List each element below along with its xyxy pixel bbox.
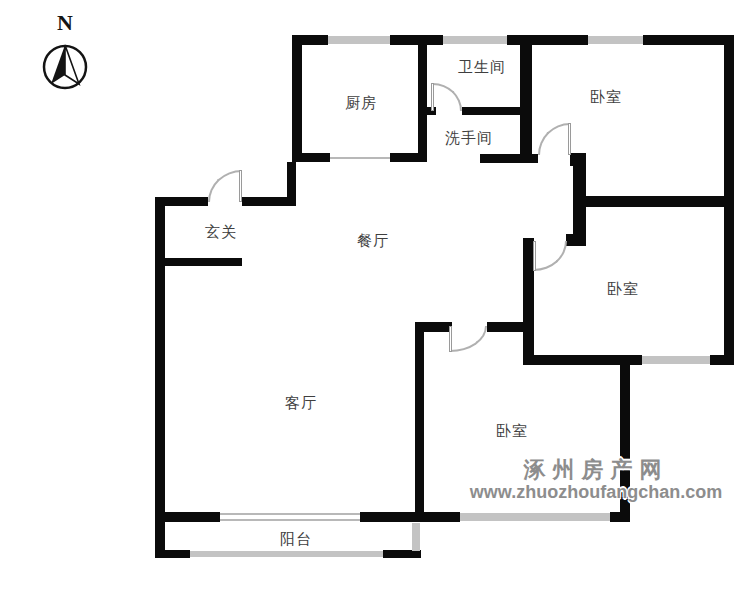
wall-kitchen-south <box>292 153 330 162</box>
window-bedroom-bottom-south <box>460 513 610 521</box>
floor-plan: N <box>0 0 746 600</box>
wall-entrance-north <box>155 197 208 206</box>
compass: N <box>35 10 95 102</box>
watermark-site-url: www.zhuozhoufangchan.com <box>440 482 746 502</box>
door-arc-bedroom-bottom <box>450 326 487 352</box>
room-label-bathroom: 卫生间 <box>442 59 522 75</box>
sliding-door-kitchen <box>330 154 390 161</box>
watermark: 涿州房产网 www.zhuozhoufangchan.com <box>440 458 746 502</box>
wall-bedroom-bottom-north <box>487 322 523 332</box>
door-leaf-bedroom-top <box>568 123 571 155</box>
room-label-washroom: 洗手间 <box>429 130 509 146</box>
door-arc-bedroom-top <box>538 123 570 155</box>
room-label-kitchen: 厨房 <box>321 95 401 111</box>
wall-balcony-south <box>383 550 421 558</box>
door-leaf-bedroom-middle <box>533 241 536 271</box>
door-arc-bedroom-middle <box>534 241 567 271</box>
door-leaf-bathroom <box>431 83 434 111</box>
wall-left-outer <box>155 197 165 558</box>
wall-living-south <box>360 512 460 522</box>
wall-kitchen-south <box>390 153 427 162</box>
room-label-dining: 餐厅 <box>333 233 413 249</box>
wall-top <box>390 35 443 45</box>
room-label-bedroom-middle: 卧室 <box>583 281 663 297</box>
window-balcony-south <box>190 551 383 557</box>
room-label-balcony: 阳台 <box>256 531 336 547</box>
room-label-living: 客厅 <box>261 395 341 411</box>
room-label-bedroom-top: 卧室 <box>566 89 646 105</box>
wall-entrance-closet-stub <box>155 258 242 266</box>
window-kitchen-north <box>328 36 390 44</box>
door-arc-bathroom <box>433 83 462 111</box>
wall-top <box>643 35 734 45</box>
wall-bedroom-bottom-west <box>415 322 424 522</box>
room-label-entrance: 玄关 <box>181 224 261 240</box>
wall-washroom-south <box>480 154 538 163</box>
watermark-site-name: 涿州房产网 <box>440 458 746 482</box>
compass-arrow-icon <box>35 32 95 102</box>
wall-bedroom-middle-door-stub <box>566 234 586 246</box>
wall-bedrooms-divider <box>586 196 734 207</box>
wall-entrance-connector <box>287 162 296 206</box>
window-bedroom-top-north <box>588 36 643 44</box>
sliding-door-balcony <box>220 513 360 521</box>
door-arc-entry <box>208 170 242 202</box>
window-bathroom-north <box>443 36 507 44</box>
wall-kitchen-east <box>418 35 427 162</box>
wall-bedroom-bottom-south <box>610 512 630 522</box>
window-balcony-east <box>412 523 420 551</box>
wall-kitchen-west <box>292 35 302 162</box>
wall-balcony-south <box>155 550 190 558</box>
door-leaf-entry <box>239 170 242 202</box>
wall-living-south <box>155 512 220 522</box>
wall-bathroom-east <box>520 35 532 163</box>
room-label-bedroom-bottom: 卧室 <box>472 423 552 439</box>
door-leaf-bedroom-bottom <box>449 326 452 352</box>
window-bedroom-middle-south <box>642 356 710 364</box>
wall-bedroom-middle-south <box>710 355 734 365</box>
wall-bedroom-top-jog <box>573 153 586 246</box>
